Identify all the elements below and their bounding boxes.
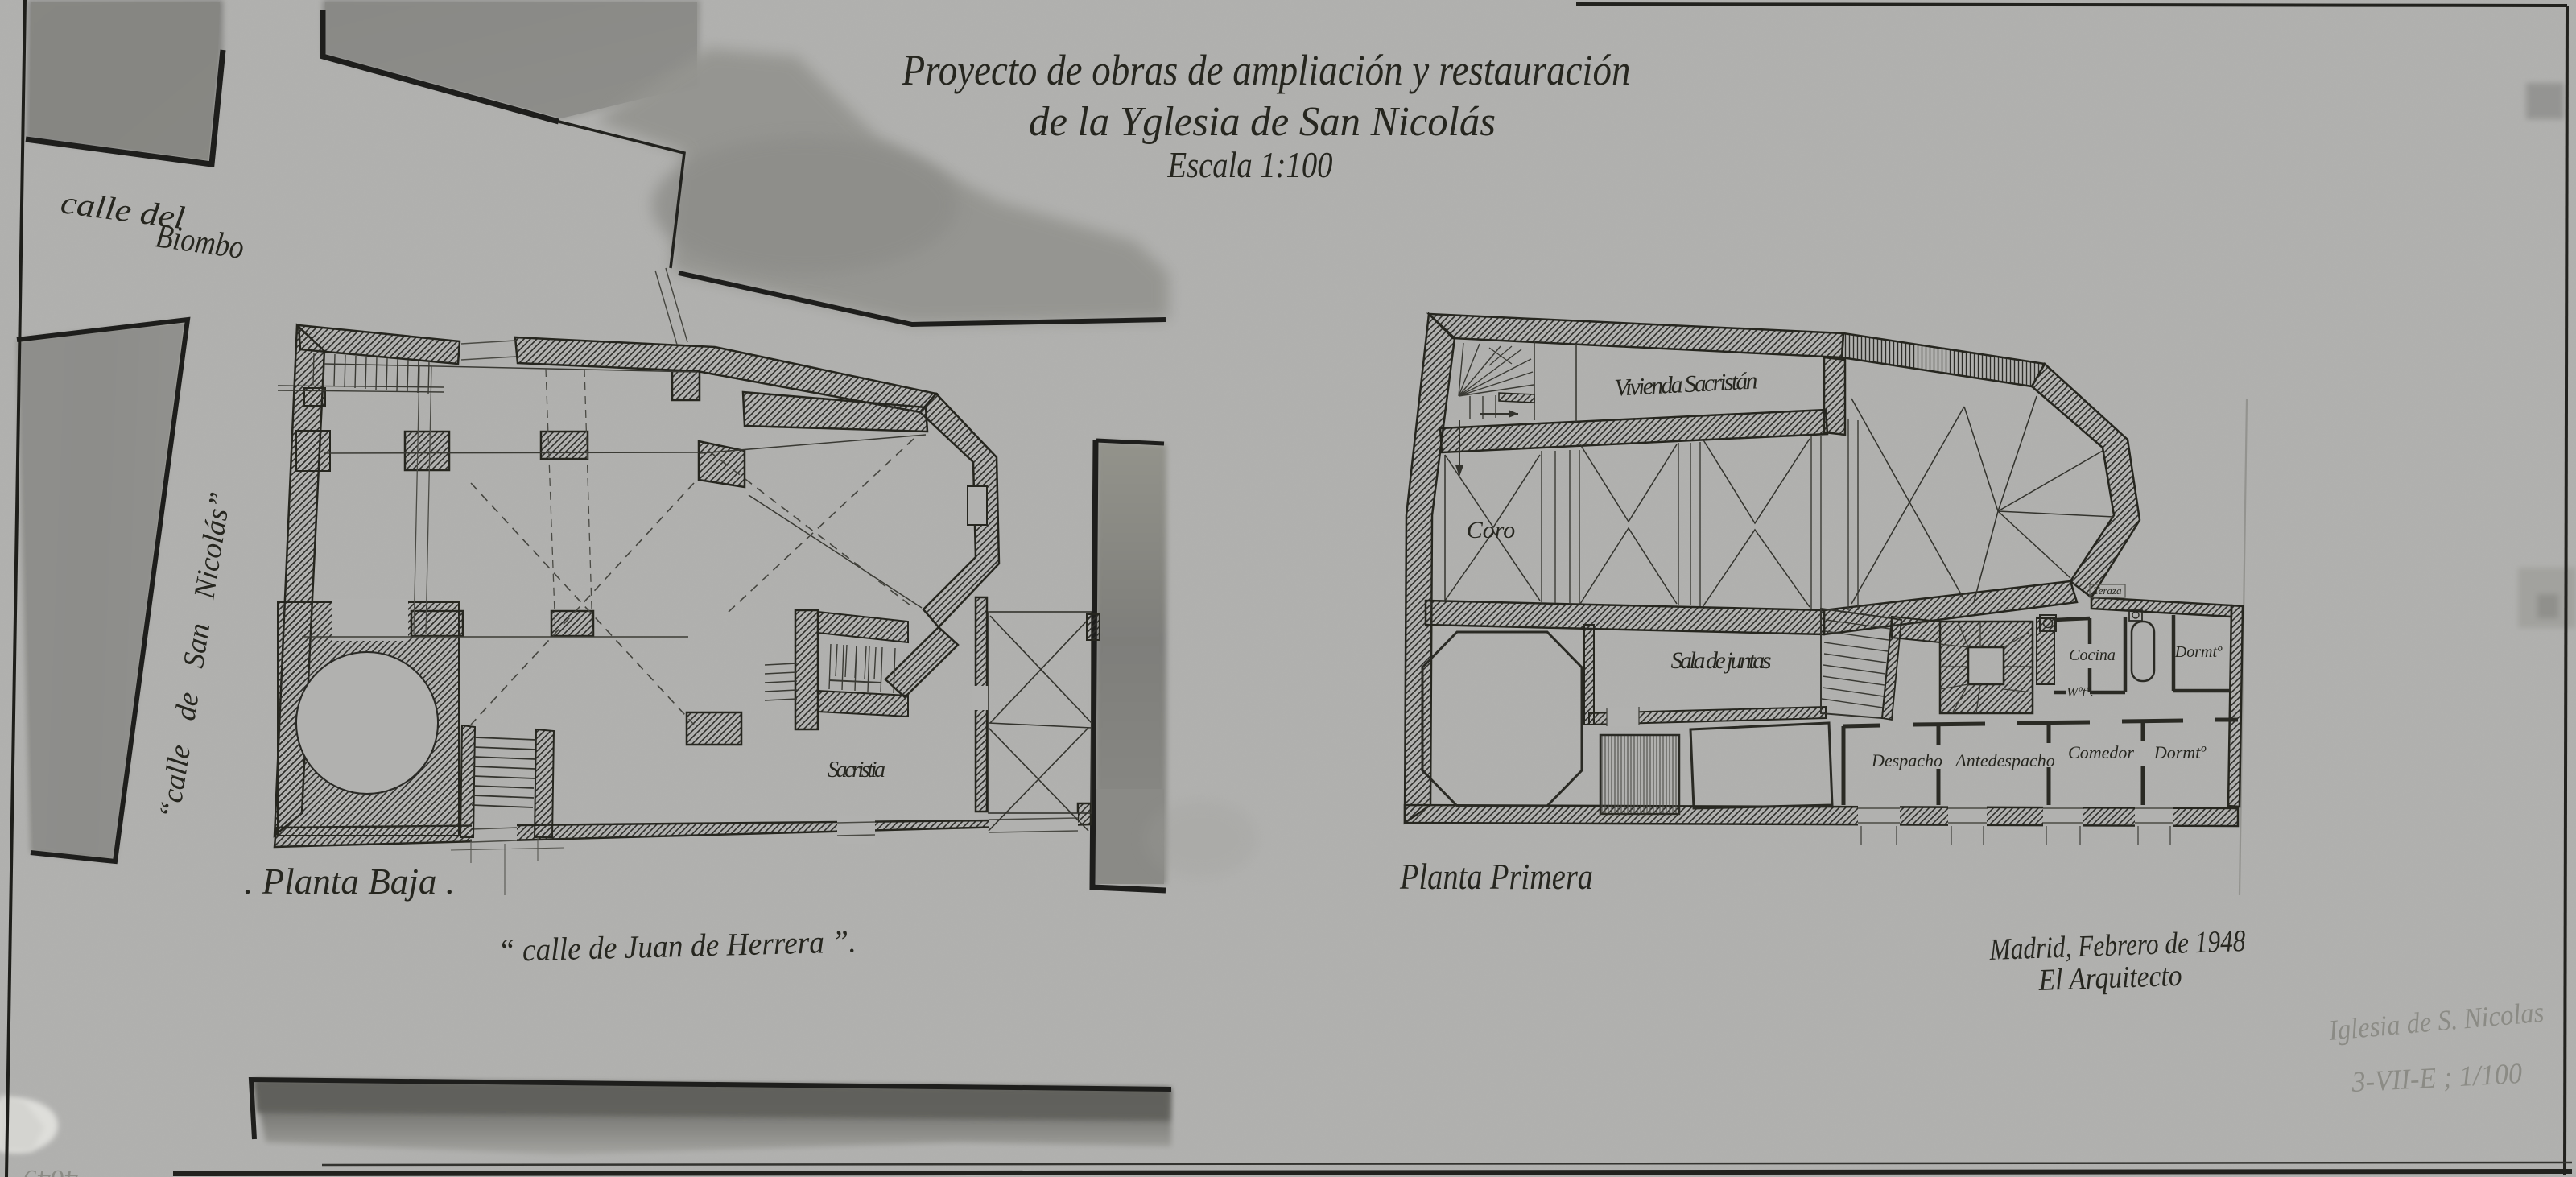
svg-text:Dormtº: Dormtº	[2153, 742, 2207, 762]
svg-text:Sala de juntas: Sala de juntas	[1671, 647, 1772, 674]
svg-text:de la Yglesia de San Nicolás: de la Yglesia de San Nicolás	[1029, 99, 1496, 145]
svg-text:Antedespacho: Antedespacho	[1954, 750, 2054, 770]
svg-text:Coro: Coro	[1467, 517, 1516, 543]
svg-text:Despacho: Despacho	[1871, 750, 1942, 770]
svg-text:El Arquitecto: El Arquitecto	[2037, 959, 2182, 997]
svg-text:Comedor: Comedor	[2068, 742, 2134, 762]
svg-text:Cocina: Cocina	[2069, 646, 2116, 664]
svg-text:Dormtº: Dormtº	[2174, 643, 2223, 661]
svg-text:Teraza: Teraza	[2094, 584, 2122, 597]
svg-text:Wºtº.: Wºtº.	[2066, 684, 2094, 700]
svg-text:Proyecto de obras de ampliació: Proyecto de obras de ampliación y restau…	[902, 46, 1631, 94]
svg-text:Planta Primera: Planta Primera	[1399, 856, 1593, 897]
svg-text:. Planta Baja .: . Planta Baja .	[244, 861, 455, 902]
svg-text:4649: 4649	[23, 1164, 78, 1177]
svg-text:Sacristia: Sacristia	[828, 758, 885, 783]
svg-text:Escala 1:100: Escala 1:100	[1167, 144, 1333, 185]
